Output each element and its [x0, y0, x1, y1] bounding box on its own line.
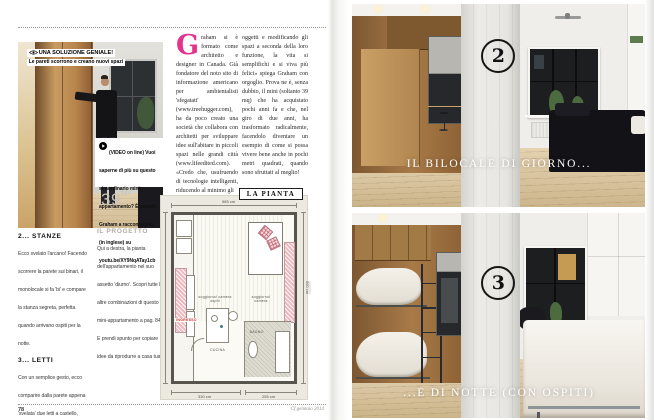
magazine-footer: Cf gennaio 2014	[291, 407, 324, 412]
project-column: IL PROGETTO Qui a destra, la pianta dell…	[97, 228, 163, 363]
upper-cabinets	[355, 225, 431, 261]
dim-line-right	[303, 212, 304, 384]
dim-top: 585 cm	[221, 199, 236, 204]
window-mullion	[526, 283, 585, 285]
bunk-frame	[356, 305, 427, 307]
dim-bottom-right: 255 cm	[261, 394, 276, 399]
section-title: 2... STANZE	[18, 233, 90, 240]
hob-dot	[220, 325, 223, 328]
video-note: (VIDEO on line) Vuoi saperne di più su q…	[95, 138, 163, 187]
bed-leg	[537, 412, 540, 418]
cabinet-wall	[18, 42, 37, 228]
steps-column: 2... STANZE Ecco svelato l'arcano! Facen…	[18, 233, 90, 420]
label-entrance: INGRESSO	[175, 318, 198, 322]
project-title: IL PROGETTO	[97, 228, 163, 235]
top-rule	[18, 27, 326, 28]
bunk-bottom	[356, 332, 427, 377]
stool-pole	[444, 114, 445, 130]
foliage	[137, 97, 154, 129]
intro-column-2: oggetti e modificando gli spazi a second…	[242, 34, 308, 178]
photo-number-badge: 2	[481, 39, 515, 73]
intro-column-1: Graham si è formato come architetto e de…	[176, 34, 238, 196]
pillar	[461, 4, 520, 207]
dim-line-bottom-right	[245, 392, 297, 393]
bed-frame	[528, 406, 640, 409]
dim-right: 660 cm	[304, 281, 311, 294]
wardrobe-panels	[587, 213, 646, 316]
sink-round	[211, 315, 218, 322]
photo-number: 3	[492, 272, 505, 294]
stool-base	[439, 129, 448, 131]
intro-text-2: oggetti e modificando gli spazi a second…	[242, 35, 308, 176]
dim-line-bottom-left	[171, 392, 241, 393]
dim-line-top	[171, 205, 297, 206]
ceiling-fan-motor	[565, 13, 570, 19]
photo-caption: IL BILOCALE DI GIORNO...	[352, 158, 646, 170]
project-body: Qui a destra, la pianta dell'appartament…	[97, 246, 163, 360]
window-left-room	[428, 36, 462, 123]
sliding-wood-panel	[35, 42, 93, 228]
label-bath: BAGNO	[250, 330, 264, 334]
bunk-top	[356, 268, 421, 305]
ceiling	[352, 213, 461, 225]
photo-number: 2	[492, 45, 505, 67]
label-kitchen: CUCINA	[210, 348, 225, 352]
label-living: soggiorno/ camera	[246, 295, 276, 303]
roller-blind	[429, 37, 461, 74]
floorplan-tab: LA PIANTA	[239, 188, 303, 200]
area-unit: M²	[121, 189, 130, 198]
kitchen-counter	[186, 275, 195, 310]
toilet	[248, 341, 257, 358]
city-view	[534, 55, 543, 68]
magazine-spread: UNA SOLUZIONE GENIALE! Le pareti scorron…	[0, 0, 654, 420]
dropcap: G	[176, 35, 199, 58]
ceiling-light	[376, 7, 380, 11]
area-value: 39	[101, 190, 121, 209]
man-torso	[96, 90, 116, 140]
appliance-unit	[176, 238, 191, 253]
page-gutter	[328, 0, 352, 420]
ceiling	[352, 4, 461, 16]
section-title: 3... LETTI	[18, 357, 90, 364]
closet-unit	[176, 220, 191, 237]
label-living-guest: soggiorno/ camera ospiti	[198, 295, 232, 303]
footer-rule	[18, 404, 326, 405]
panel-seam	[91, 42, 92, 228]
section-body: Con un semplice gesto, ecco comparire da…	[18, 375, 89, 420]
photo-callout: UNA SOLUZIONE GENIALE! Le pareti scorron…	[27, 49, 125, 69]
photo-caption: ...E DI NOTTE (CON OSPITI)	[352, 387, 646, 399]
panel-seam	[618, 213, 619, 316]
kitchen-island	[206, 308, 228, 343]
area-figure: 39M²	[101, 189, 130, 210]
section-body: Ecco svelato l'arcano! Facendo scorrere …	[18, 251, 87, 347]
man-hair	[101, 75, 108, 79]
panel-seam	[62, 42, 63, 228]
play-icon	[99, 142, 107, 150]
ceiling-light	[423, 7, 427, 11]
panel-seam	[588, 256, 646, 257]
books	[630, 36, 643, 42]
photo-night: 3 ...E DI NOTTE (CON OSPITI)	[352, 213, 646, 418]
white-throw	[631, 116, 646, 134]
page-edge	[645, 0, 654, 420]
section-stanze: 2... STANZE Ecco svelato l'arcano! Facen…	[18, 233, 90, 350]
callout-line-2: Le pareti scorrono e creano nuovi spazi	[27, 59, 125, 67]
shower	[275, 331, 290, 373]
callout-line-1: UNA SOLUZIONE GENIALE!	[27, 49, 115, 57]
window-mullion	[530, 81, 598, 83]
section-letti: 3... LETTI Con un semplice gesto, ecco c…	[18, 357, 90, 420]
wood-floor-left	[352, 173, 461, 208]
kitchen-sink	[186, 311, 195, 336]
dim-line-left	[165, 212, 166, 384]
page-number: 78	[18, 407, 24, 413]
bunk-frame	[356, 377, 430, 379]
ladder-rung	[421, 357, 442, 359]
dim-bottom-left: 330 cm	[197, 394, 212, 399]
city-view	[441, 278, 458, 323]
white-double-bed	[523, 320, 646, 418]
lit-building	[558, 254, 576, 280]
floorplan-drawing: INGRESSO CUCINA BAGNO soggiorno/ camera …	[171, 212, 297, 384]
wall-unit	[627, 4, 646, 110]
wardrobe-right	[284, 242, 296, 324]
eye-icon	[29, 50, 38, 55]
murphy-bed-panel	[361, 49, 420, 167]
photo-day: 2 IL BILOCALE DI GIORNO...	[352, 4, 646, 207]
floorplan-panel: LA PIANTA 585 cm 660 cm 145 cm 330 cm 25…	[160, 195, 308, 400]
sofa-cushion	[555, 103, 590, 115]
